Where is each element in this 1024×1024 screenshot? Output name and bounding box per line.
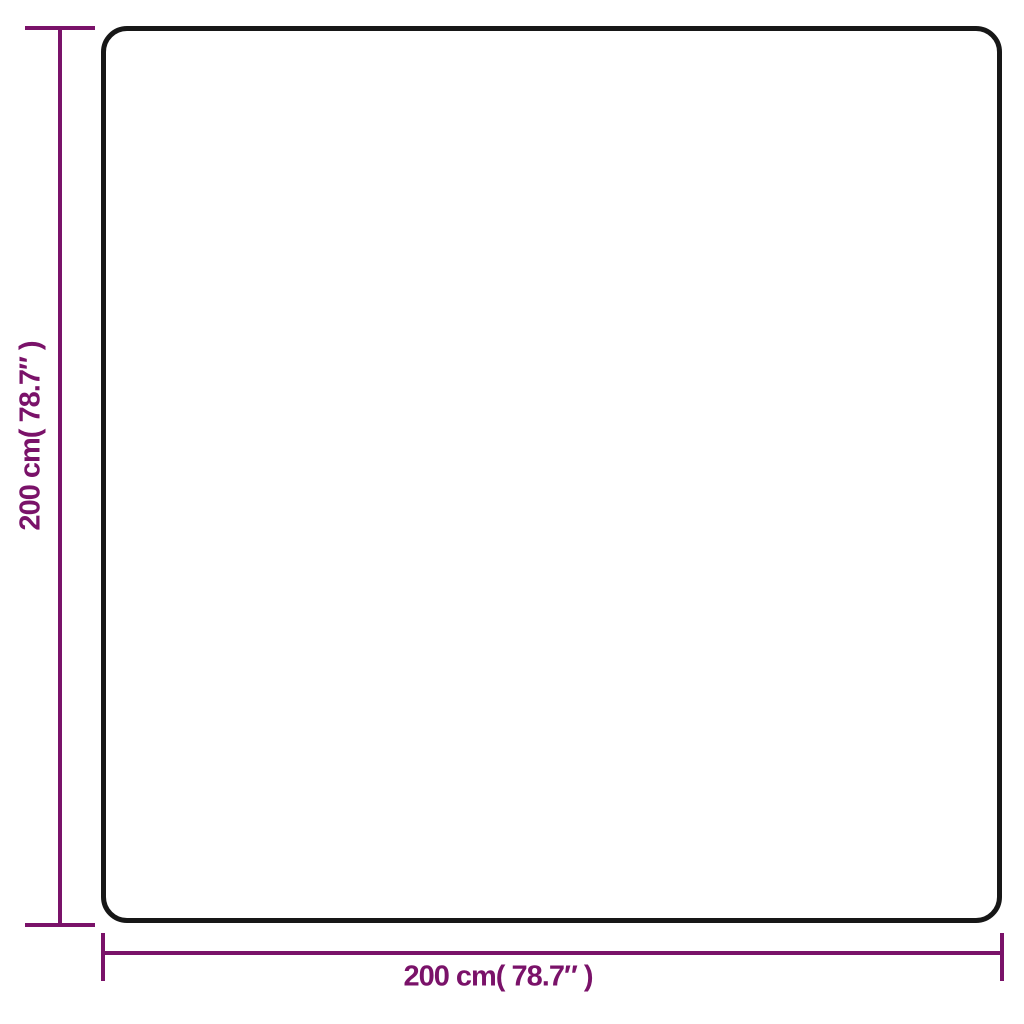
dimension-diagram: 200 cm( 78.7″ ) 200 cm( 78.7″ ) (0, 0, 1024, 1024)
horizontal-dimension-label: 200 cm( 78.7″ ) (403, 963, 592, 992)
horizontal-dimension-end-cap-right (1000, 933, 1004, 981)
vertical-dimension-end-cap-bottom (25, 923, 95, 927)
horizontal-dimension-line (103, 951, 1002, 955)
product-outline (101, 26, 1002, 923)
vertical-dimension-label: 200 cm( 78.7″ ) (17, 341, 46, 530)
horizontal-dimension-end-cap-left (101, 933, 105, 981)
vertical-dimension-line (58, 28, 62, 925)
